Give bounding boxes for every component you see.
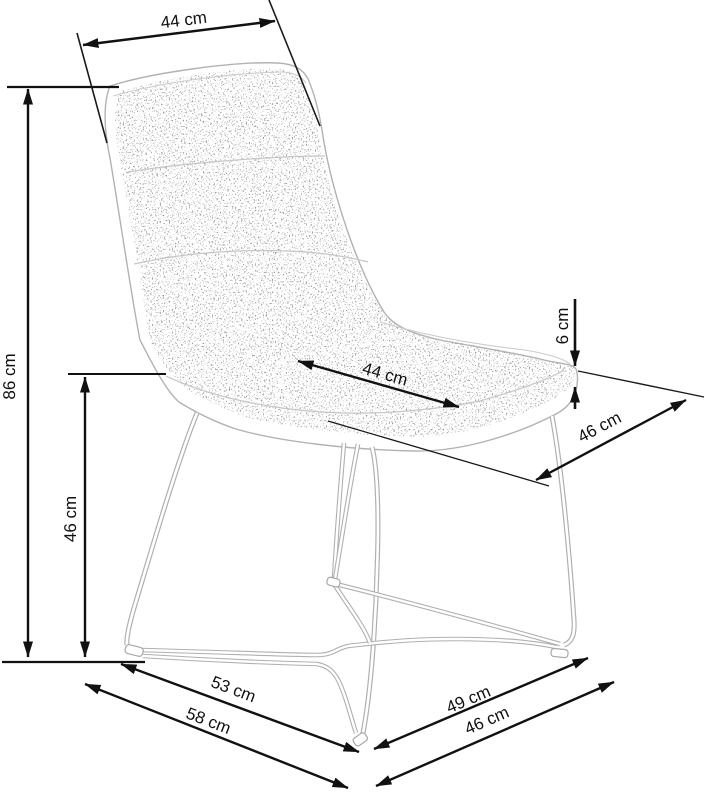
svg-text:6 cm: 6 cm	[553, 308, 572, 345]
svg-text:86 cm: 86 cm	[0, 353, 19, 399]
svg-text:46 cm: 46 cm	[61, 496, 80, 542]
